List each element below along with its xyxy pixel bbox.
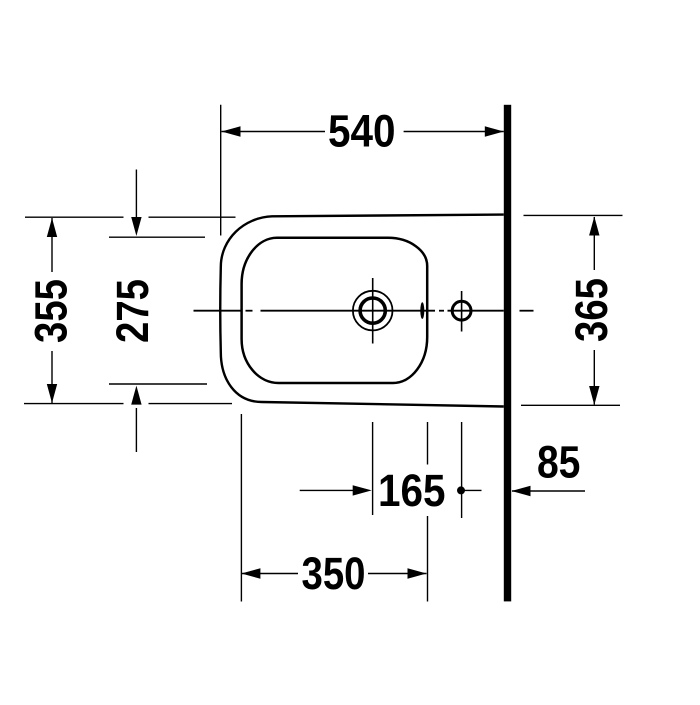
svg-text:365: 365 xyxy=(566,278,617,342)
svg-text:275: 275 xyxy=(107,279,158,343)
svg-text:540: 540 xyxy=(328,106,396,157)
svg-text:355: 355 xyxy=(26,279,77,343)
svg-text:165: 165 xyxy=(378,465,446,516)
svg-text:350: 350 xyxy=(302,548,366,599)
svg-text:85: 85 xyxy=(537,437,581,488)
